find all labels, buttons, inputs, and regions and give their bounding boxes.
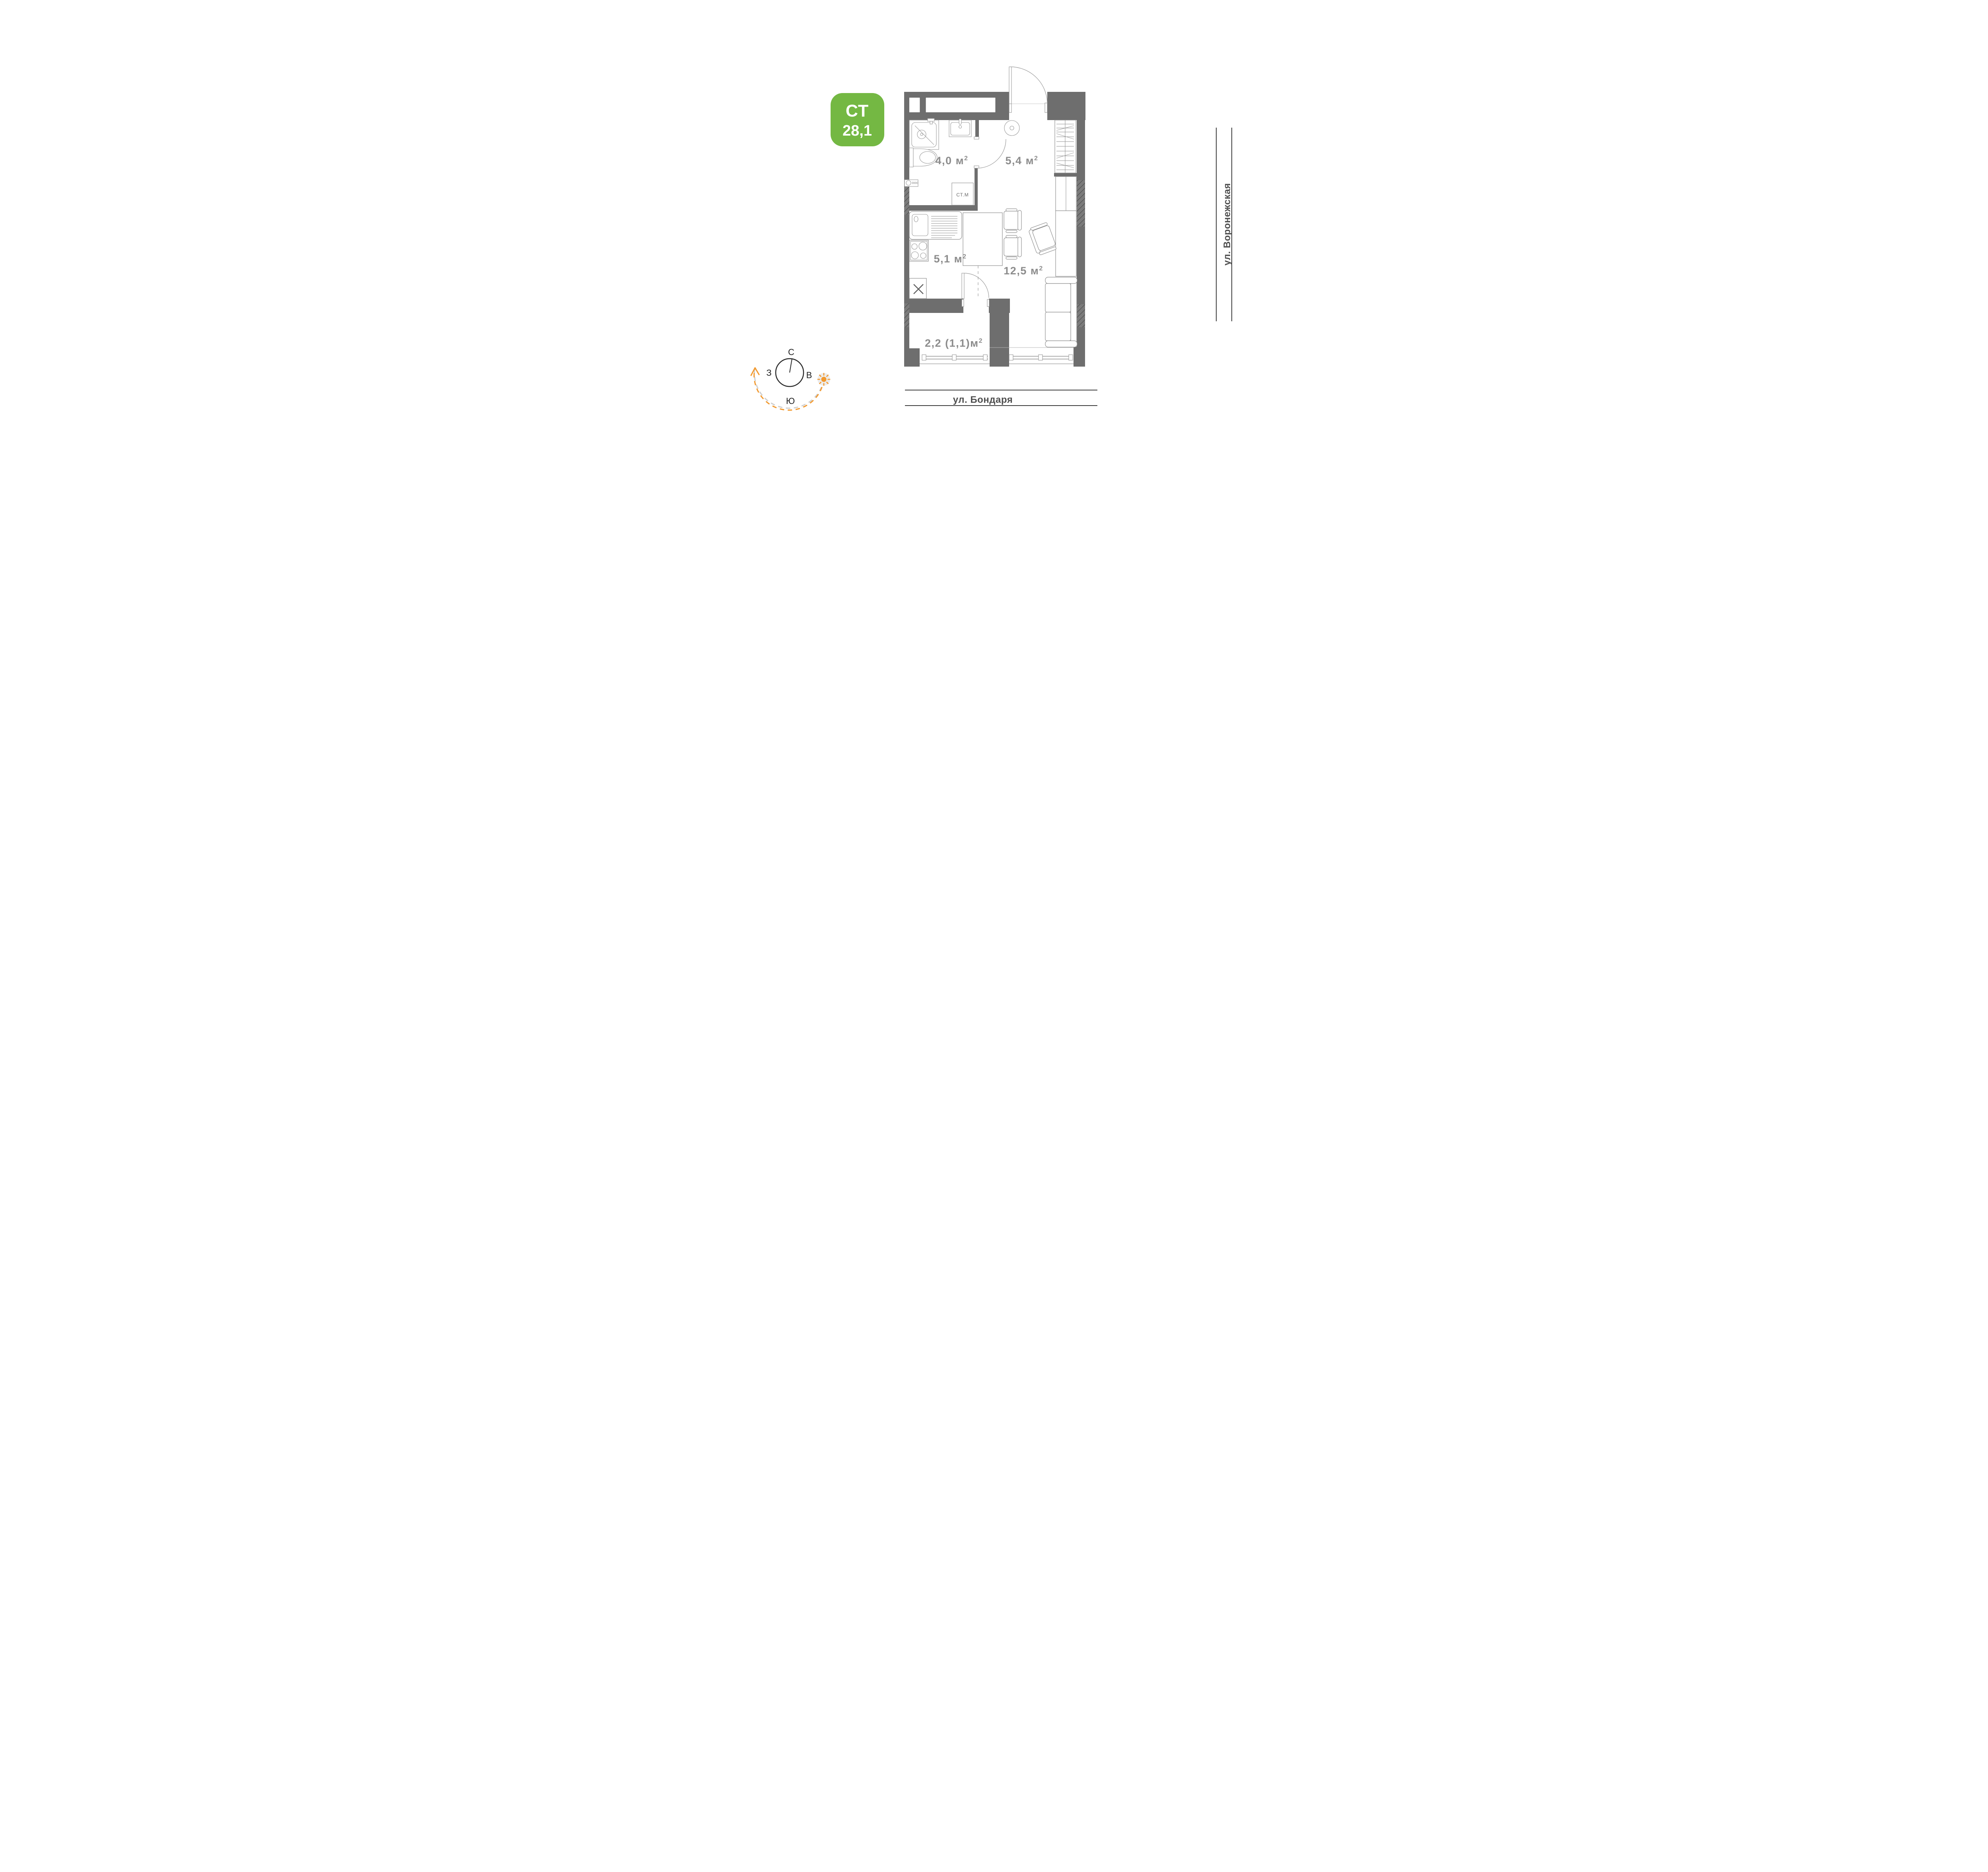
dining-table — [963, 213, 1002, 266]
sun-path-arrow — [751, 368, 759, 375]
toilet — [909, 148, 937, 167]
wall-bath-partition-lower — [975, 168, 978, 205]
compass-north: С — [788, 347, 794, 357]
entrance-door — [1009, 67, 1047, 113]
wall-pier-bottom-center — [990, 313, 1009, 367]
wall-left-hatch-2 — [904, 303, 909, 327]
washing-machine-label: СТ.М — [956, 192, 969, 198]
badge-type: СТ — [846, 101, 869, 120]
balcony-door-swing — [964, 273, 989, 298]
sofa-back — [1071, 280, 1077, 344]
bathroom-sink — [949, 119, 971, 137]
chair — [1004, 235, 1021, 259]
shower-head-icon — [928, 118, 934, 121]
compass-south: Ю — [786, 396, 795, 406]
sofa-cushion — [1045, 284, 1071, 312]
chair-backrest — [1018, 237, 1021, 257]
window-mullion — [1039, 355, 1043, 360]
entrance-door-leaf — [1009, 67, 1011, 104]
sofa-cushion — [1045, 312, 1071, 341]
wall-right-hatch-1 — [1077, 180, 1085, 227]
wardrobe — [1055, 120, 1076, 173]
shower-head-icon — [930, 121, 932, 124]
armchair — [1028, 222, 1057, 256]
street-bottom: ул. Бондаря — [905, 390, 1097, 406]
fridge-slot — [909, 278, 926, 299]
page: СТ 28,1 — [696, 0, 1292, 468]
cabinet-column — [1056, 177, 1076, 276]
room-label-bathroom: 4,0 м2 — [936, 155, 969, 167]
water-meter-box — [905, 180, 918, 186]
wall-top-right — [1047, 92, 1085, 120]
kitchen-sink-counter — [909, 212, 962, 239]
room-label-hallway: 5,4 м2 — [1006, 155, 1039, 167]
bathroom-door — [974, 137, 1006, 168]
street-label-right: ул. Воронежская — [1222, 183, 1233, 265]
bathroom-jamb-bottom — [974, 166, 979, 168]
sofa-armrest-bottom — [1045, 341, 1077, 347]
wall-bath-partition-upper — [975, 120, 979, 139]
street-right: ул. Воронежская — [1216, 128, 1233, 321]
compass: С Ю З В — [751, 347, 830, 410]
window-mullion — [1009, 355, 1013, 360]
bathroom-jamb-top — [974, 137, 979, 139]
chair — [1004, 209, 1021, 233]
living-window — [1009, 355, 1073, 360]
balcony-jamb-right — [987, 299, 989, 307]
washing-machine: СТ.М — [952, 183, 973, 205]
balcony-door-leaf — [962, 273, 964, 299]
sofa-armrest-top — [1045, 277, 1077, 284]
entrance-door-swing — [1010, 67, 1047, 104]
wall-stub-bottom-left — [909, 348, 920, 367]
chair-backrest — [1018, 210, 1021, 230]
window-mullion — [983, 355, 987, 360]
wall-corner-bottom-right — [1074, 347, 1085, 367]
floor-plan: СТ.М — [904, 67, 1085, 367]
floorplan-canvas: СТ 28,1 — [696, 0, 1292, 468]
room-label-kitchen: 5,1 м2 — [934, 253, 967, 265]
badge-area: 28,1 — [843, 122, 872, 139]
balcony-jamb-left — [962, 299, 964, 307]
ceiling-light-icon — [1004, 120, 1019, 136]
entrance-jamb-right — [1045, 103, 1047, 113]
area-badge: СТ 28,1 — [831, 93, 884, 146]
wall-wardrobe-strip — [1054, 173, 1077, 177]
room-label-living: 12,5 м2 — [1004, 265, 1043, 277]
stove — [909, 240, 928, 261]
duct-shaft-small — [909, 97, 920, 113]
street-label-bottom: ул. Бондаря — [953, 394, 1013, 405]
window-mullion — [922, 355, 926, 360]
bathroom-door-swing — [977, 139, 1006, 168]
shower — [909, 118, 939, 150]
balcony-window — [922, 355, 988, 360]
tall-cabinet — [1056, 211, 1076, 276]
wall-bathroom-bottom — [909, 205, 978, 211]
duct-shaft-large — [926, 97, 996, 113]
wall-balcony-top-left — [909, 299, 963, 313]
faucet-icon — [959, 119, 961, 124]
sun-icon — [817, 373, 830, 386]
wall-right-hatch-2 — [1077, 304, 1085, 327]
sofa — [1045, 277, 1077, 347]
window-mullion — [1069, 355, 1073, 360]
wall-balcony-top-right — [989, 299, 1010, 313]
compass-west: З — [766, 368, 771, 378]
window-mullion — [952, 355, 956, 360]
entrance-jamb-left — [1009, 103, 1011, 113]
room-label-balcony: 2,2 (1,1)м2 — [925, 337, 983, 349]
compass-east: В — [806, 370, 812, 380]
